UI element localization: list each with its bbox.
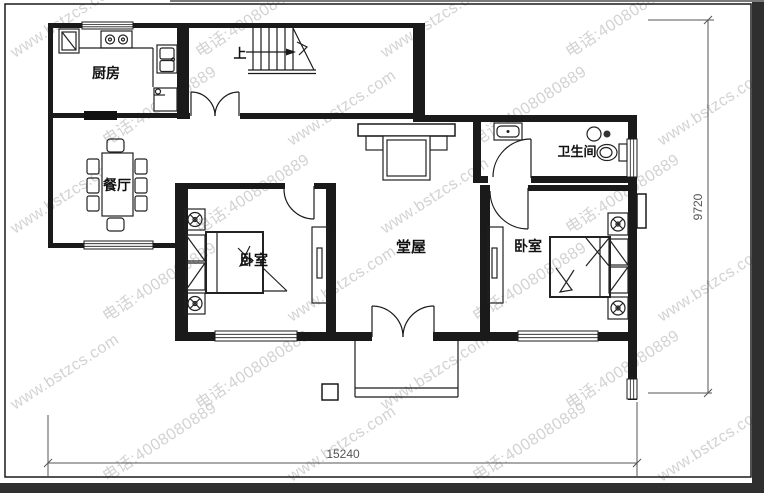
- watermark-text: 电话:4008080889: [99, 238, 219, 325]
- watermark-text: www.bstzcs.com: [654, 403, 764, 486]
- scan-edge-right: [752, 0, 764, 493]
- windows: [82, 22, 637, 399]
- watermark-text: 电话:4008080889: [99, 398, 219, 485]
- wall-stair-south-a: [177, 113, 190, 119]
- east-south-window: [627, 379, 637, 399]
- wall-hall-bath-divider: [473, 116, 481, 178]
- bedroom1-door: [284, 186, 314, 219]
- chair: [135, 178, 147, 193]
- watermark-text: 电话:4008080889: [469, 62, 589, 149]
- width-dimension-label: 15240: [326, 447, 360, 461]
- stool: [366, 136, 383, 150]
- watermark-text: 电话:4008080889: [562, 150, 682, 237]
- wall-kitchen-stair: [177, 27, 189, 115]
- bedroom-right-label: 卧室: [514, 238, 542, 254]
- exterior-unit: [637, 194, 646, 228]
- watermark-text: 电话:4008080889: [192, 150, 312, 237]
- nightstand-lamp-icon: [608, 213, 628, 235]
- bedroom-left-label: 卧室: [240, 252, 268, 268]
- bedroom2-door: [490, 188, 528, 229]
- bathroom-label: 卫生间: [557, 144, 596, 159]
- hall-furniture: [358, 124, 455, 180]
- nightstand-lamp-icon: [608, 297, 628, 319]
- bedroom2-south-window: [518, 331, 598, 341]
- watermark-text: www.bstzcs.com: [377, 331, 492, 414]
- wall-bedroom1-north-a: [175, 183, 285, 189]
- wall-stair-south-b: [240, 113, 425, 119]
- wall-bath-south-a: [473, 176, 488, 183]
- watermark-text: www.bstzcs.com: [284, 243, 399, 326]
- stove-icon: [101, 31, 132, 48]
- chair: [135, 159, 147, 174]
- bathroom-door: [493, 139, 531, 178]
- dining-label: 餐厅: [102, 177, 131, 193]
- stair-break-line: [293, 28, 314, 70]
- bed-icon: [186, 232, 287, 293]
- floor-drain-icon: [587, 127, 601, 141]
- vent-dot-icon: [604, 131, 611, 138]
- watermark-text: www.bstzcs.com: [284, 67, 399, 150]
- watermark-text: www.bstzcs.com: [654, 67, 764, 150]
- watermark-text: www.bstzcs.com: [284, 403, 399, 486]
- wall-east-section-north: [413, 115, 637, 122]
- toilet-icon: [597, 144, 627, 161]
- floor-plan-drawing: www.bstzcs.com 电话:4008080889 www.bstzcs.…: [0, 0, 764, 493]
- porch-column: [322, 384, 338, 400]
- entry-double-door: [372, 306, 434, 337]
- bathroom-east-window: [627, 139, 637, 177]
- wall-bath-south-b: [531, 176, 637, 183]
- kitchen-cabinet-icon: [154, 88, 177, 111]
- square-table: [383, 136, 430, 180]
- wall-stair-east: [413, 23, 425, 119]
- stair-hall-double-door: [191, 92, 239, 116]
- dining-south-window: [84, 241, 153, 249]
- kitchen-label: 厨房: [92, 65, 120, 81]
- kitchen-sink-icon: [157, 45, 177, 73]
- bedroom1-south-window: [215, 331, 297, 341]
- washbasin-icon: [494, 123, 522, 140]
- staircase: 上: [233, 28, 316, 74]
- watermark-text: www.bstzcs.com: [654, 243, 764, 326]
- stairs-up-label: 上: [233, 46, 246, 61]
- hall-label: 堂屋: [396, 238, 426, 256]
- watermark-text: 电话:4008080889: [562, 0, 682, 61]
- watermark-text: www.bstzcs.com: [377, 0, 492, 62]
- console-table: [358, 124, 455, 136]
- chair: [107, 218, 124, 231]
- scan-edge-top: [170, 0, 764, 2]
- fridge-icon: [59, 29, 79, 53]
- kitchen-sliding-door: [84, 111, 117, 120]
- stool: [430, 136, 447, 150]
- height-dimension-label: 9720: [691, 193, 705, 220]
- watermark-text: www.bstzcs.com: [7, 331, 122, 414]
- chair: [135, 196, 147, 211]
- wall-bedroom2-north-b: [528, 185, 637, 191]
- wall-west: [48, 23, 53, 248]
- watermark-text: 电话:4008080889: [469, 398, 589, 485]
- chair: [87, 196, 99, 211]
- floor-plan-page: www.bstzcs.com 电话:4008080889 www.bstzcs.…: [0, 0, 764, 493]
- scan-edge-bottom: [0, 483, 764, 493]
- kitchen-north-window: [82, 22, 133, 29]
